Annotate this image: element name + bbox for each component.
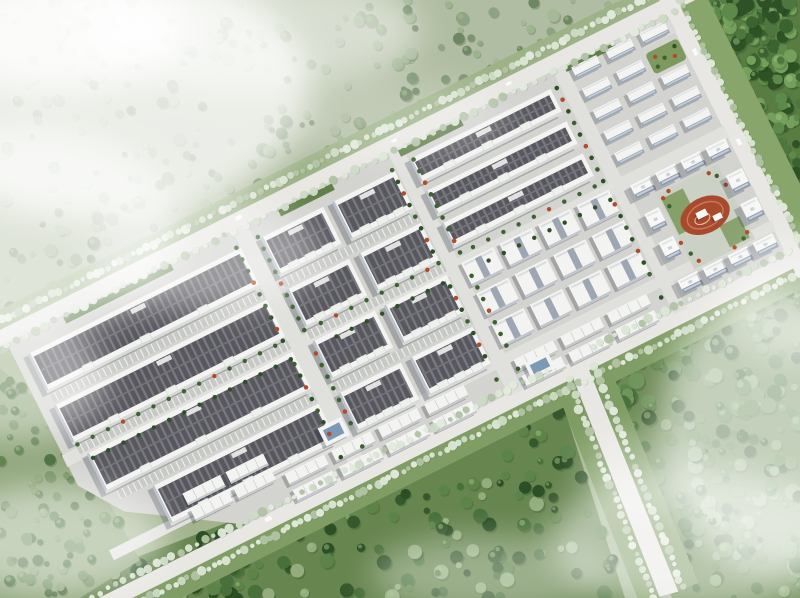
aerial-render-canvas [0, 0, 800, 598]
aerial-masterplan-render [0, 0, 800, 598]
